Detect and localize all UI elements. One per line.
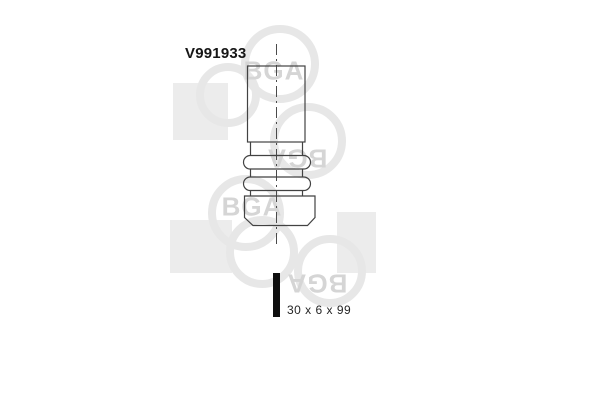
part-number-label: V991933 bbox=[185, 45, 246, 62]
valve-drawing bbox=[0, 0, 600, 400]
valve-head bbox=[245, 196, 316, 226]
scale-bar bbox=[273, 273, 280, 317]
product-image: BGA BGA BGA BGA V991933 30 x 6 x 99 bbox=[0, 0, 600, 400]
dimensions-label: 30 x 6 x 99 bbox=[287, 303, 351, 317]
